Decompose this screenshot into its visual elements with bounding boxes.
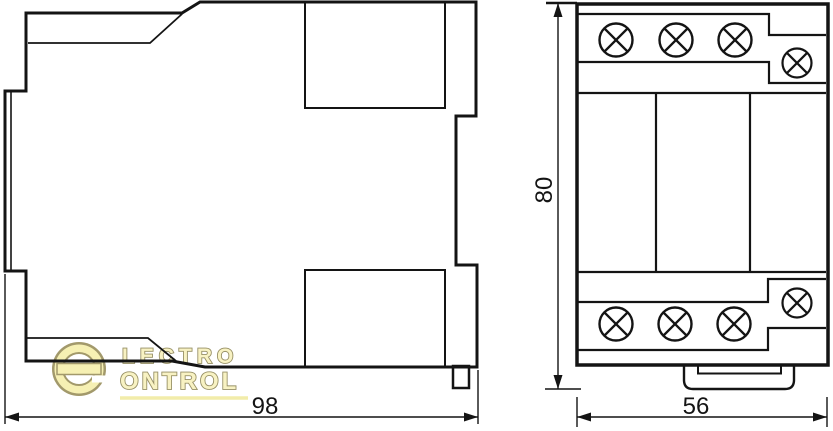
- side-view-lower-block: [305, 270, 445, 367]
- screw-terminal-icon: [719, 24, 752, 57]
- side-view-upper-block: [305, 3, 445, 108]
- dim56-arrow-right: [813, 413, 827, 422]
- screw-terminal-icon: [783, 49, 812, 78]
- side-view-top-step-line: [28, 14, 182, 43]
- front-bottom-band-lower: [578, 328, 826, 350]
- din-clip-outer: [684, 366, 794, 389]
- watermark-line1: LECTRO: [122, 345, 238, 368]
- dim98-arrow-left: [5, 413, 19, 422]
- dim98-arrow-right: [464, 413, 478, 422]
- side-view: [5, 2, 477, 388]
- dimension-80: 80: [531, 3, 581, 389]
- dim56-arrow-left: [577, 413, 591, 422]
- screw-terminal-icon: [600, 24, 633, 57]
- side-view-foot-peg: [453, 366, 469, 388]
- screw-terminal-icon: [659, 308, 692, 341]
- front-view: [577, 4, 828, 389]
- dim56-label: 56: [683, 393, 710, 420]
- dim80-arrow-up: [554, 3, 563, 17]
- drawing-svg: LECTRO ONTROL: [0, 0, 833, 431]
- watermark-line2: ONTROL: [120, 368, 239, 395]
- screw-terminal-icon: [660, 24, 693, 57]
- screw-terminal-icon: [783, 289, 812, 318]
- din-clip-inner: [698, 366, 781, 374]
- watermark-e-icon: [52, 342, 106, 396]
- screw-terminal-icon: [600, 308, 633, 341]
- watermark-logo: LECTRO ONTROL: [52, 342, 248, 398]
- screw-terminal-icon: [718, 308, 751, 341]
- dimension-56: 56: [577, 393, 827, 427]
- dim98-label: 98: [252, 393, 279, 420]
- side-view-outline: [5, 2, 477, 367]
- dim80-label: 80: [531, 177, 558, 204]
- dim80-arrow-down: [554, 375, 563, 389]
- technical-drawing-canvas: LECTRO ONTROL: [0, 0, 833, 431]
